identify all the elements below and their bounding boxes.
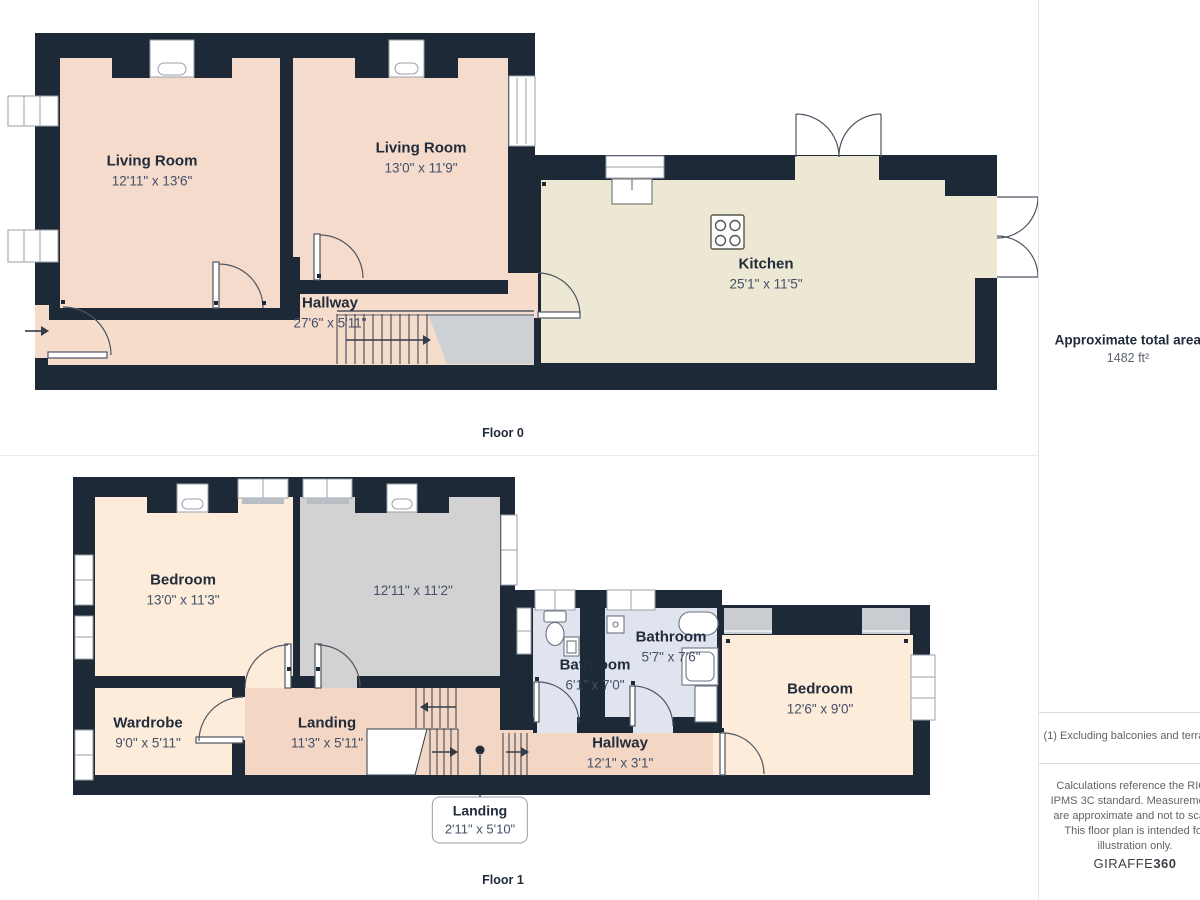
room-label-bedroom-1: Bedroom 13'0" x 11'3" <box>146 570 219 611</box>
total-area-value: 1482 ft² <box>1048 351 1200 365</box>
sidebar-divider-line <box>1038 0 1039 900</box>
floor0-plan <box>8 33 1038 390</box>
sidebar-hr-1 <box>1039 712 1200 713</box>
floor1-plan <box>73 477 935 801</box>
room-label-hallway-f0: Hallway 27'6" x 5'11" <box>293 293 366 334</box>
room-label-kitchen: Kitchen 25'1" x 11'5" <box>729 254 802 295</box>
landing-callout: Landing 2'11" x 5'10" <box>432 797 528 844</box>
room-label-gray-room: 12'11" x 11'2" <box>373 581 453 601</box>
floor-divider-line <box>0 455 1038 456</box>
disclaimer-text: Calculations reference the RICS IPMS 3C … <box>1046 779 1200 854</box>
room-label-living-room-1: Living Room 12'11" x 13'6" <box>107 151 198 192</box>
kitchen-sink-icon <box>612 179 652 204</box>
room-label-bathroom-2: Bathroom 5'7" x 7'6" <box>636 627 707 668</box>
room-label-bathroom-1: Bathroom 6'1" x 7'0" <box>560 655 631 696</box>
sidebar-hr-2 <box>1039 763 1200 764</box>
kitchen-hob-icon <box>711 215 744 249</box>
floor1-caption: Floor 1 <box>482 873 524 887</box>
room-label-bedroom-2: Bedroom 12'6" x 9'0" <box>787 679 854 720</box>
toilet-icon <box>544 611 566 646</box>
room-label-hallway-f1: Hallway 12'1" x 3'1" <box>587 733 654 774</box>
room-label-landing: Landing 11'3" x 5'11" <box>291 713 363 754</box>
giraffe360-logo: GIRAFFE360 <box>1046 856 1200 871</box>
floorplan-page: Living Room 12'11" x 13'6" Living Room 1… <box>0 0 1200 900</box>
sink-icon <box>564 637 579 656</box>
floor0-caption: Floor 0 <box>482 426 524 440</box>
room-label-wardrobe: Wardrobe 9'0" x 5'11" <box>113 713 182 754</box>
shower-control-icon <box>607 616 624 633</box>
area-footnote: (1) Excluding balconies and terraces <box>1040 730 1200 742</box>
room-label-living-room-2: Living Room 13'0" x 11'9" <box>376 138 467 179</box>
total-area-title: Approximate total area(1) <box>1048 331 1200 348</box>
